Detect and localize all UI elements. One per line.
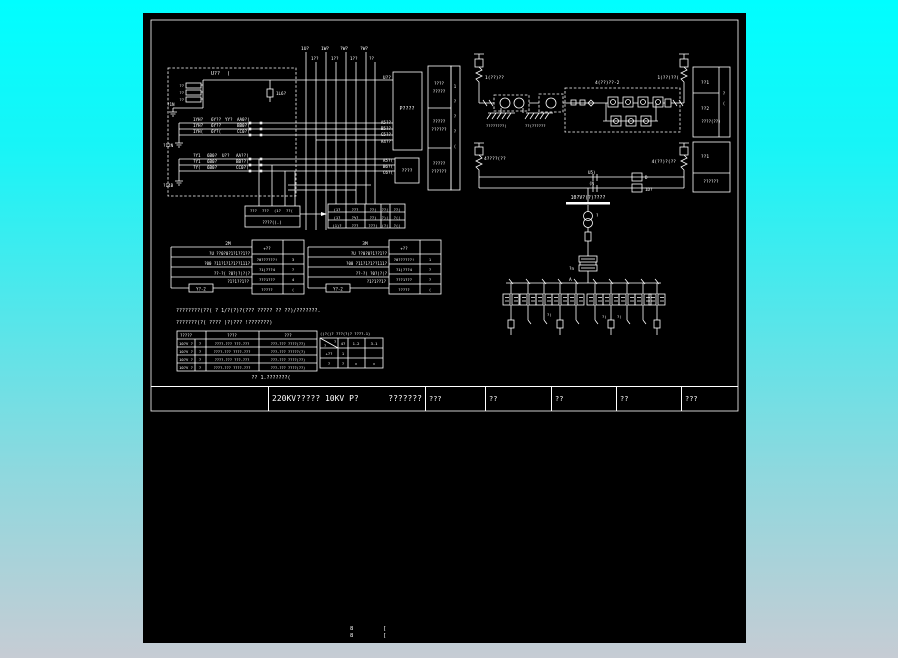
diagram-label: 1 <box>342 351 345 356</box>
diagram-label: 3-1 <box>371 341 379 346</box>
distribution-branch <box>570 279 583 324</box>
secondary-pair-circuit <box>474 143 689 192</box>
diagram-label: ??1 <box>701 154 709 160</box>
diagram-label: ?00 ?11?1?1??111? <box>346 261 388 266</box>
distribution-branch <box>637 279 650 324</box>
diagram-label: 6B0? <box>207 153 218 158</box>
titleblock-cell-2: ?? <box>485 387 551 411</box>
distribution-branch <box>554 279 567 335</box>
diagram-label: ( <box>292 287 294 292</box>
diagram-label: C6?( <box>383 170 393 175</box>
diagram-label: × <box>373 361 376 366</box>
diagram-label: 3M <box>362 241 368 247</box>
diagram-label: P???? <box>399 106 414 112</box>
diagram-label: ? <box>292 267 294 272</box>
diagram-label: 10?V ? <box>179 341 193 346</box>
diagram-label: +?? <box>400 246 408 251</box>
diagram-label: ?1N <box>167 102 175 107</box>
diagram-label: ?W? <box>360 46 368 52</box>
diagram-label: B5?? <box>381 126 392 131</box>
diagram-label: (1? <box>274 208 281 213</box>
diagram-label: ? <box>454 114 457 119</box>
diagram-label: ??? <box>352 207 359 212</box>
distribution-branch <box>505 279 518 335</box>
diagram-label: 6B0? <box>207 165 218 170</box>
diagram-label: 4? <box>341 341 346 346</box>
diagram-label: ??2 <box>701 106 709 112</box>
diagram-label: 1-2 <box>353 341 360 346</box>
diagram-label: B6?( <box>383 164 393 169</box>
diagram-label: 8 <box>350 626 353 632</box>
diagram-label: 6B0? <box>207 159 218 164</box>
diagram-label: ??( <box>382 207 389 212</box>
diagram-label: ????? <box>433 119 446 124</box>
diagram-label: ??( <box>394 207 401 212</box>
diagram-label: ????? <box>180 333 193 338</box>
diagram-label: BB??( <box>236 159 249 164</box>
diagram-label: ????-??? ???-??? <box>215 358 250 362</box>
diagram-label: ? <box>596 213 599 218</box>
diagram-label: ?????? <box>431 127 447 132</box>
diagram-label: A5?( <box>383 158 393 163</box>
signal-list-left <box>171 240 304 294</box>
diagram-label: ?n <box>569 266 575 271</box>
diagram-label: 1U? <box>301 46 309 52</box>
diagram-label: ? <box>199 365 201 370</box>
titleblock-cell-4: ?? <box>616 387 681 411</box>
pt-secondary-circuit <box>474 54 689 132</box>
diagram-label: (1? <box>334 207 341 212</box>
diagram-label: ??( <box>370 207 377 212</box>
distribution-branch <box>605 279 618 335</box>
distribution-branch <box>621 279 634 324</box>
diagram-label: ???? <box>227 333 237 338</box>
diagram-label: ( <box>429 287 431 292</box>
title-block: 220KV????? 10KV P? ??????? ??? ?? ?? ?? … <box>151 386 738 411</box>
diagram-label: (1)? <box>332 223 341 228</box>
diagram-label: ??? <box>250 208 257 213</box>
diagram-label: ?1?1??1? <box>367 279 387 284</box>
diagram-label: 1W? <box>321 46 329 52</box>
diagram-label: ?? <box>369 56 375 61</box>
diagram-label: ????? <box>261 287 272 292</box>
diagram-label: ?)( <box>382 215 389 220</box>
diagram-label: ? <box>454 129 457 134</box>
diagram-label: ?) <box>602 314 607 319</box>
diagram-label: ?????? <box>703 179 719 184</box>
diagram-label: ??-?( ?0?)?(? <box>356 271 388 276</box>
diagram-label: ???( <box>368 223 377 228</box>
diagram-label: ?U ??0?0?1?1??1?? <box>209 251 251 256</box>
diagram-label: 4(??)??-2 <box>595 80 620 86</box>
diagram-label: ? <box>324 344 326 348</box>
diagram-label: AA??( <box>236 153 249 158</box>
diagram-label: AA0?( <box>237 117 250 122</box>
diagram-label: ????????(??( ? 1/?(?)?(??? ????? ?? ??)/… <box>176 308 321 314</box>
diagram-label: BB0?( <box>237 123 250 128</box>
diagram-label: 1 <box>454 84 457 89</box>
diagram-label: [ <box>383 626 386 632</box>
diagram-label: ???? <box>434 81 445 86</box>
diagram-label: (N <box>589 181 595 186</box>
diagram-label: 6Y?( <box>211 129 221 134</box>
diagram-label: ?W? <box>340 46 348 52</box>
diagram-label: A <box>569 277 572 283</box>
titleblock-cell-1: ??? <box>425 387 485 411</box>
diagram-label: CC0?( <box>237 129 250 134</box>
diagram-label: 6Y?? <box>211 117 222 122</box>
diagram-label: 2M <box>225 241 231 247</box>
diagram-label: ?? <box>179 97 184 102</box>
diagram-label: ? <box>199 349 201 354</box>
diagram-label: 1L6? <box>276 91 287 96</box>
diagram-label: ??(?????? <box>525 123 546 128</box>
diagram-label: 6Y?? <box>211 123 222 128</box>
diagram-label: ????? <box>433 161 446 166</box>
diagram-label: ?????? <box>431 169 447 174</box>
diagram-label: Y?-2 <box>196 287 206 292</box>
diagram-label: 1YH? <box>193 123 204 128</box>
diagram-label: 1(??)?? <box>485 75 504 81</box>
diagram-label: ?14B <box>163 183 174 188</box>
diagram-label: U?? <box>383 75 391 81</box>
diagram-label: ()?()? ???(?(? ????-1) <box>320 331 370 336</box>
diagram-label: ?(( <box>394 223 401 228</box>
diagram-label: [ <box>383 633 386 639</box>
diagram-label: ?1)???4 <box>259 267 276 272</box>
diagram-label: ?1?1??1?? <box>227 279 249 284</box>
diagram-label: ? <box>199 357 201 362</box>
diagram-label: ????(??) <box>701 119 720 124</box>
diagram-label: 1?? <box>350 56 358 61</box>
diagram-label: ?12N <box>163 143 174 148</box>
diagram-label: ?( <box>547 312 552 317</box>
diagram-label: D <box>645 175 648 180</box>
diagram-label: 4 <box>292 277 295 282</box>
diagram-label: ? <box>454 99 457 104</box>
diagram-label: ???1??? <box>396 277 412 282</box>
diagram-label: ?0??????! <box>394 257 415 262</box>
diagram-label: ?Y1 <box>193 153 201 158</box>
diagram-label: 1D? <box>645 187 653 192</box>
diagram-label: ? <box>342 361 344 366</box>
diagram-label: ?? <box>179 90 184 95</box>
diagram-label: ? <box>199 341 201 346</box>
diagram-label: ???????(?( ???? )?)??? !???????) <box>176 320 272 326</box>
diagram-label: 3 <box>292 257 294 262</box>
distribution-branch <box>538 279 551 324</box>
diagram-label: U5) <box>588 170 596 175</box>
diagram-label: 4(??)?(?? <box>652 159 677 165</box>
diagram-label: ??( <box>286 208 293 213</box>
diagram-label: ??? <box>262 208 269 213</box>
diagram-label: 10?V ? <box>179 365 193 370</box>
diagram-label: 1YH? <box>193 117 204 122</box>
diagram-label: ?00 ?11?1?1?1??111? <box>204 261 250 266</box>
diagram-label: A5?? <box>381 120 392 125</box>
diagram-label: ? <box>429 267 431 272</box>
diagram-label: ??) <box>370 215 377 220</box>
pt-feeder <box>506 188 661 283</box>
diagram-label: ????? <box>433 89 446 94</box>
diagram-label: ????-??? ????-??? <box>214 366 251 370</box>
cad-drawing-canvas: U??(1L6?U?????????1N?12N?14B1YH?6Y??YY?A… <box>143 13 746 643</box>
vertical-bus-wires <box>259 52 375 230</box>
diagram-label: ?(( <box>394 215 401 220</box>
diagram-label: ?Y( <box>193 165 201 170</box>
diagram-label: ????-??? ???-??? <box>215 342 250 346</box>
diagram-label: ?U ??0?0?1??1?? <box>351 251 388 256</box>
distribution-branch <box>522 279 535 324</box>
distribution-branch <box>589 279 602 324</box>
diagram-label: CC0?( <box>236 165 249 170</box>
diagram-label: 10?V ? <box>179 349 193 354</box>
diagram-label: ?? <box>179 83 184 88</box>
diagram-label: ????((.) <box>262 220 281 225</box>
diagram-label: ?( <box>617 314 622 319</box>
diagram-label: U?? <box>222 153 230 158</box>
diagram-label: ??-?( ?0?)?)?(? <box>214 271 251 276</box>
diagram-label: ???1??? <box>259 277 275 282</box>
diagram-label: 1 <box>429 257 432 262</box>
diagram-label: ( <box>723 101 725 106</box>
diagram-label: ????-??? ????-??? <box>214 350 251 354</box>
diagram-label: ???? <box>402 168 413 174</box>
diagram-label: U?? <box>211 71 220 77</box>
diagram-label: 10?V ? <box>179 357 193 362</box>
diagram-label: × <box>355 361 358 366</box>
legend-boxes <box>693 67 730 192</box>
diagram-label: ????????( <box>486 123 507 128</box>
schematic-svg: U??(1L6?U?????????1N?12N?14B1YH?6Y??YY?A… <box>143 13 746 643</box>
diagram-label: ??? <box>284 333 292 338</box>
diagram-label: ????? <box>398 287 409 292</box>
diagram-label: ???-??? ?????(?) <box>271 350 306 354</box>
diagram-label: ???-??? ????(??) <box>271 342 306 346</box>
diagram-label: A4?? <box>381 139 392 144</box>
diagram-label: ? <box>429 277 431 282</box>
titleblock-cell-3: ?? <box>551 387 616 411</box>
diagram-label: ??? <box>352 223 359 228</box>
titleblock-cell-blank <box>151 387 268 411</box>
diagram-label: ?Y1 <box>193 159 201 164</box>
diagram-label: 10?V?(?)???? <box>571 195 606 201</box>
diagram-label: ??1 <box>701 80 709 86</box>
diagram-label: YY? <box>225 117 233 122</box>
diagram-label: ???-??? ????(??) <box>271 358 306 362</box>
signal-list-right <box>308 240 441 294</box>
diagram-label: ???-??? ????(??) <box>271 366 306 370</box>
diagram-label: ?? 1.???????( <box>251 375 290 381</box>
diagram-label: ?%? <box>352 215 359 220</box>
desktop-background: { "title_bar": { "main": "220KV????? 10K… <box>0 0 898 658</box>
diagram-label: 1?? <box>311 56 319 61</box>
titleblock-cell-5: ??? <box>681 387 738 411</box>
diagram-label: ? <box>328 361 330 366</box>
titleblock-cell-title: 220KV????? 10KV P? ??????? <box>268 387 425 411</box>
diagram-label: +?? <box>263 246 271 251</box>
diagram-label: ( <box>454 144 456 149</box>
junction-dots <box>249 122 262 172</box>
diagram-label: C5?? <box>381 132 392 137</box>
drawing-title: 220KV????? 10KV P? <box>272 387 359 411</box>
diagram-label: (1? <box>334 215 341 220</box>
diagram-label: 8 <box>350 633 353 639</box>
diagram-label: ? <box>334 340 336 344</box>
diagram-label: Y?-2 <box>333 287 343 292</box>
diagram-label: ? <box>723 91 726 96</box>
diagram-label: 1(??)??( <box>657 75 679 81</box>
distribution-branch <box>651 279 664 335</box>
diagram-label: 1?? <box>331 56 339 61</box>
diagram-label: ( <box>227 71 230 77</box>
diagram-label: (?( <box>382 223 389 228</box>
diagram-label: ?1)???4 <box>396 267 413 272</box>
diagram-label: +?? <box>326 351 333 356</box>
drawing-subtitle: ??????? <box>388 387 422 411</box>
diagram-label: 1YH( <box>193 129 203 134</box>
diagram-label: ?0??????! <box>257 257 278 262</box>
distribution-branches <box>503 279 665 335</box>
diagram-label: 4????(?? <box>484 156 506 162</box>
